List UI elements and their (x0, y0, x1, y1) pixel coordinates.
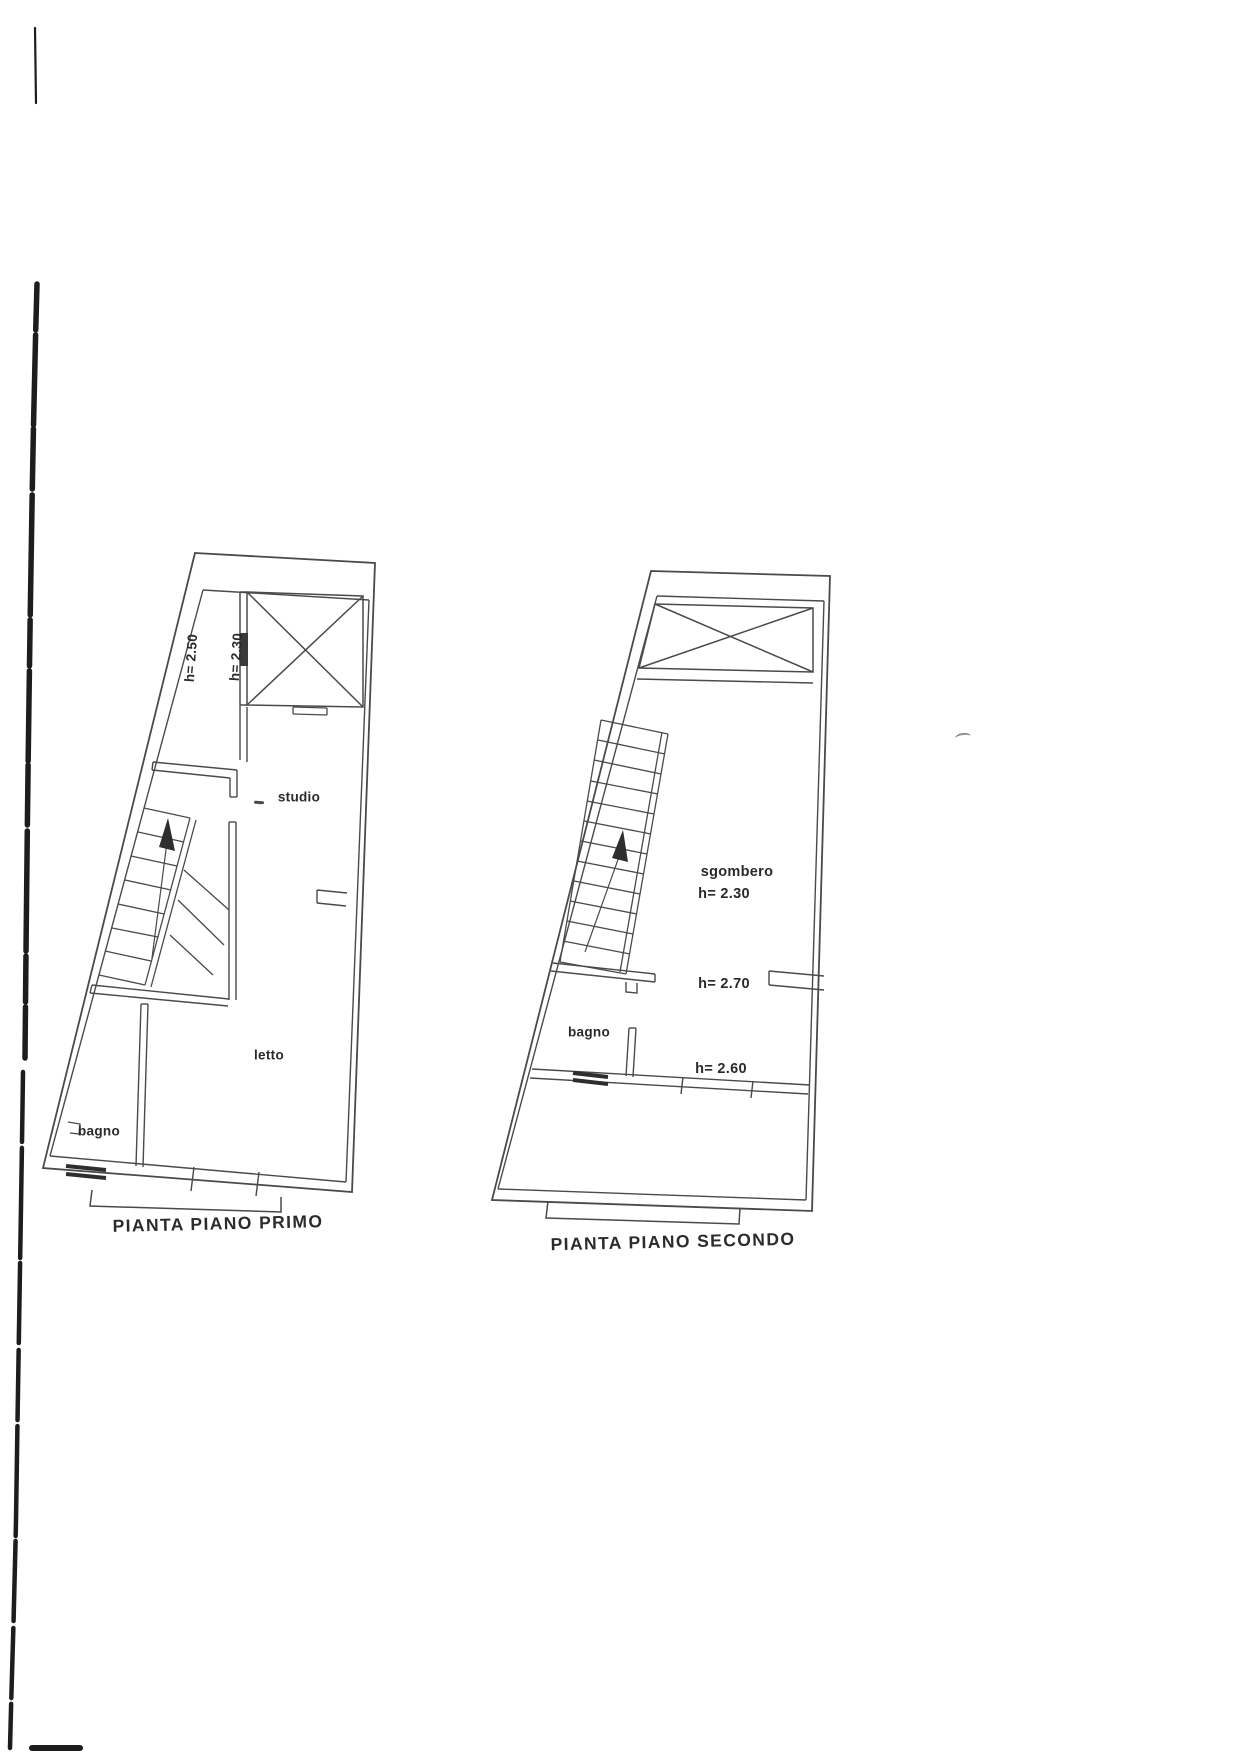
plan1-shaft-cross (240, 592, 363, 707)
plan2-outer-wall (492, 571, 830, 1211)
plan2-bottom-wall (530, 1069, 810, 1094)
plan2-stub-right (769, 971, 824, 990)
plan1-balcony (90, 1190, 281, 1212)
plan1-partition-upper (152, 762, 237, 797)
room-label-bagno-second: bagno (568, 1025, 610, 1040)
plan1-wall-below-stairs (90, 985, 229, 1006)
room-label-studio: studio (278, 790, 320, 805)
plan2-bagno-wall (626, 1028, 636, 1077)
plan1-partition-stub-right (317, 890, 347, 906)
plan2-shaft-cross (639, 604, 813, 672)
plan1-partition-vertical (229, 822, 236, 1000)
height-label-270-second: h= 2.70 (698, 976, 750, 992)
room-label-letto: letto (254, 1048, 284, 1063)
plan1-outer-wall (43, 553, 375, 1192)
plan1-corridor-wall (240, 705, 247, 762)
plan1-window-under-shaft (293, 707, 327, 715)
scan-streak-top-line (35, 28, 36, 103)
plan1-bagno-wall (136, 1004, 148, 1167)
scanned-floor-plan-page: { "page": { "background": "#ffffff", "li… (0, 0, 1240, 1753)
plan2-wall-below-stairs (551, 963, 655, 993)
scan-streak-lower (10, 1072, 23, 1748)
plan2-inner-wall (498, 596, 824, 1200)
room-label-sgombero: sgombero (701, 864, 774, 880)
plan1-inner-wall (50, 590, 369, 1182)
room-label-bagno-first: bagno (78, 1124, 120, 1139)
stray-pen-mark (254, 801, 264, 805)
plan2-wall-below-shaft (637, 679, 813, 683)
plan2-window (573, 1073, 608, 1084)
floor-plan-first (30, 530, 400, 1270)
floor-plan-second (470, 540, 850, 1260)
height-label-230-second: h= 2.30 (698, 886, 750, 902)
height-label-260-second: h= 2.60 (695, 1061, 747, 1077)
